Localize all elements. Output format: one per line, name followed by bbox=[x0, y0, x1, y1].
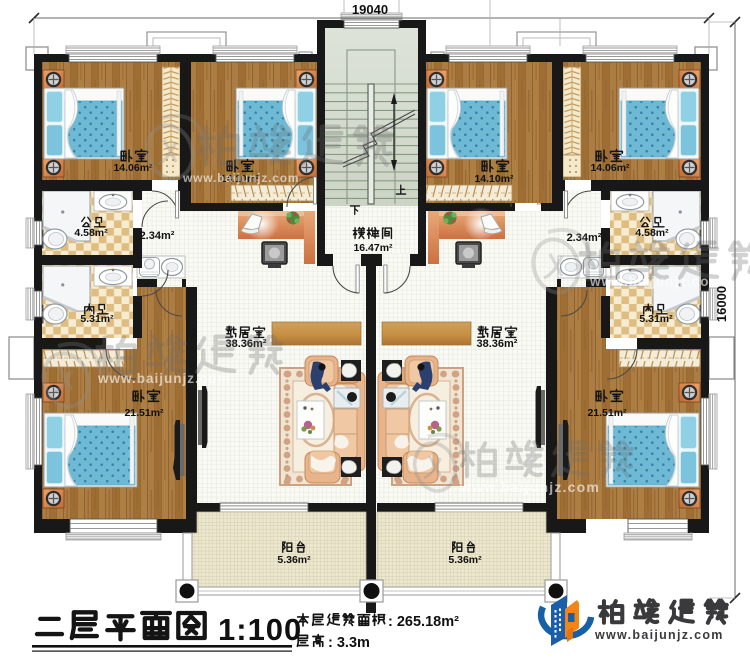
svg-text:14.10m²: 14.10m² bbox=[474, 173, 514, 185]
svg-text:38.36m²: 38.36m² bbox=[477, 338, 518, 350]
svg-text:: 3.3m: : 3.3m bbox=[328, 635, 370, 651]
svg-text:www.baijunjz.com: www.baijunjz.com bbox=[594, 628, 724, 642]
svg-text:14.06m²: 14.06m² bbox=[590, 162, 630, 174]
svg-text:5.36m²: 5.36m² bbox=[277, 554, 311, 566]
svg-text:21.51m²: 21.51m² bbox=[587, 407, 627, 419]
svg-text:www.baijunjz.com: www.baijunjz.com bbox=[97, 371, 231, 386]
svg-text:: 265.18m²: : 265.18m² bbox=[388, 614, 459, 630]
svg-text:www.baijunjz.com: www.baijunjz.com bbox=[182, 171, 299, 185]
svg-text:16.47m²: 16.47m² bbox=[353, 242, 393, 254]
svg-text:5.31m²: 5.31m² bbox=[80, 313, 114, 325]
svg-text:21.51m²: 21.51m² bbox=[124, 407, 164, 419]
svg-text:4.58m²: 4.58m² bbox=[74, 227, 108, 239]
svg-text:4.58m²: 4.58m² bbox=[635, 227, 669, 239]
svg-text:14.06m²: 14.06m² bbox=[113, 162, 153, 174]
svg-text:1:100: 1:100 bbox=[218, 612, 302, 647]
svg-text:www.baijunjz.com: www.baijunjz.com bbox=[589, 274, 723, 289]
svg-text:19040: 19040 bbox=[352, 2, 388, 17]
svg-text:5.36m²: 5.36m² bbox=[448, 554, 482, 566]
svg-text:2.34m²: 2.34m² bbox=[140, 230, 175, 242]
svg-text:www.baijunjz.com: www.baijunjz.com bbox=[459, 479, 600, 495]
svg-text:16000: 16000 bbox=[714, 286, 729, 322]
svg-text:5.31m²: 5.31m² bbox=[639, 313, 673, 325]
